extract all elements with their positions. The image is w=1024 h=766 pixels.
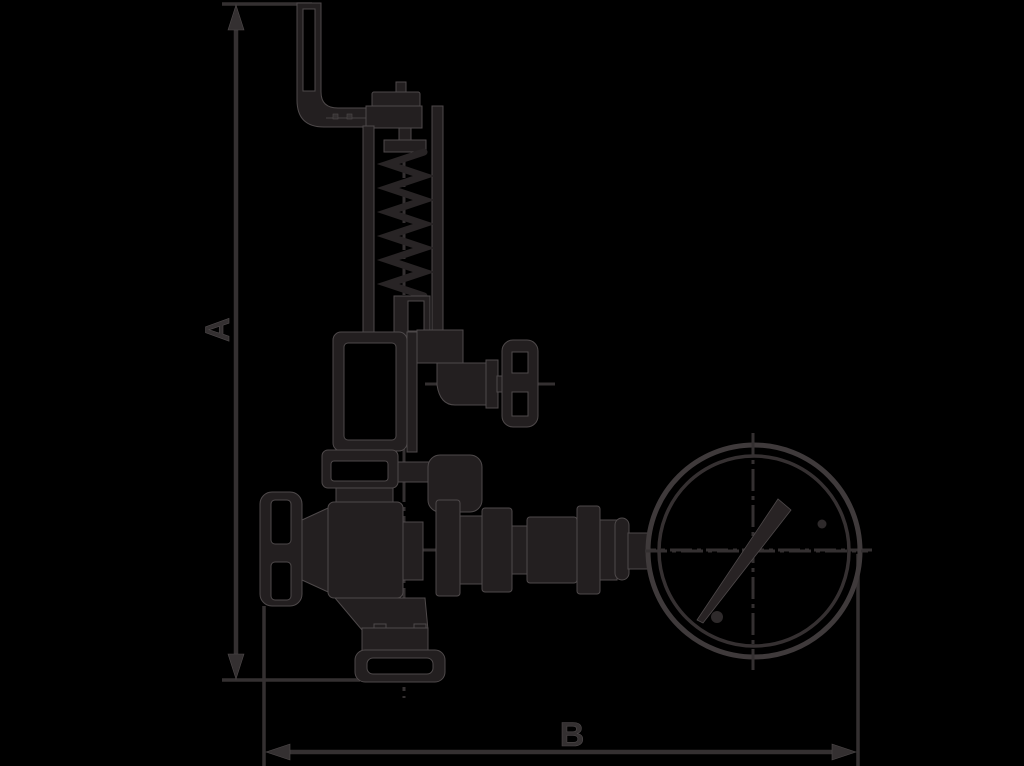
gauge-dial-screw bbox=[711, 611, 723, 623]
outlet-neck bbox=[437, 363, 490, 405]
pipe-flange bbox=[436, 500, 460, 596]
dim-a-label: A bbox=[199, 317, 237, 342]
gauge-piping bbox=[403, 500, 648, 596]
spring bbox=[388, 152, 424, 296]
lever-rivet bbox=[347, 114, 352, 119]
valve-technical-drawing: A B bbox=[0, 0, 1024, 766]
gauge-needle bbox=[697, 499, 791, 623]
pipe-block bbox=[600, 520, 617, 580]
outlet-flange bbox=[486, 360, 498, 408]
pipe-neck bbox=[512, 526, 527, 574]
pipe-spacer bbox=[460, 516, 482, 584]
dim-b-label: B bbox=[560, 716, 585, 754]
bottom-outlet bbox=[355, 624, 445, 682]
body-boss bbox=[403, 522, 423, 580]
lever-bracket bbox=[297, 3, 372, 127]
lever-bracket-channel bbox=[303, 9, 315, 91]
inlet-handwheel-panel-top bbox=[271, 500, 291, 544]
outlet-handwheel-panel-top bbox=[512, 352, 528, 373]
dim-b-arrow-right bbox=[832, 744, 856, 760]
inlet-stem-housing bbox=[302, 508, 328, 592]
dim-a-arrow-up bbox=[228, 5, 244, 30]
outlet-handwheel-panel-bottom bbox=[512, 392, 528, 416]
dim-b-arrow-left bbox=[266, 744, 290, 760]
body-shell bbox=[328, 502, 403, 598]
side-stub bbox=[398, 462, 432, 482]
bottom-flange-panel bbox=[367, 658, 433, 674]
gauge-dial-screw bbox=[818, 520, 827, 529]
spring-follower-slot bbox=[408, 301, 424, 331]
cap-plate bbox=[372, 92, 420, 107]
union-nut bbox=[577, 506, 600, 594]
adjusting-cap bbox=[366, 82, 422, 128]
mid-flange-panel bbox=[331, 461, 388, 481]
outlet-pipe bbox=[362, 628, 428, 652]
yoke-rail-left bbox=[363, 126, 374, 336]
dim-a-arrow-down bbox=[228, 654, 244, 679]
gauge-socket bbox=[615, 518, 629, 580]
drawing-canvas: A B bbox=[0, 0, 1024, 766]
yoke-rail-right bbox=[432, 106, 443, 336]
inlet-handwheel-panel-bottom bbox=[271, 562, 291, 600]
pipe-fitting bbox=[527, 517, 577, 583]
outlet-handwheel-assembly bbox=[417, 330, 538, 427]
upper-valve-body bbox=[333, 332, 417, 452]
cap-base-plate bbox=[366, 106, 422, 128]
outlet-top-block bbox=[417, 330, 463, 363]
union-hex bbox=[482, 508, 512, 592]
upper-body-panel bbox=[344, 343, 396, 440]
lever-rivet bbox=[333, 114, 338, 119]
stem-guide-strip bbox=[407, 332, 417, 452]
